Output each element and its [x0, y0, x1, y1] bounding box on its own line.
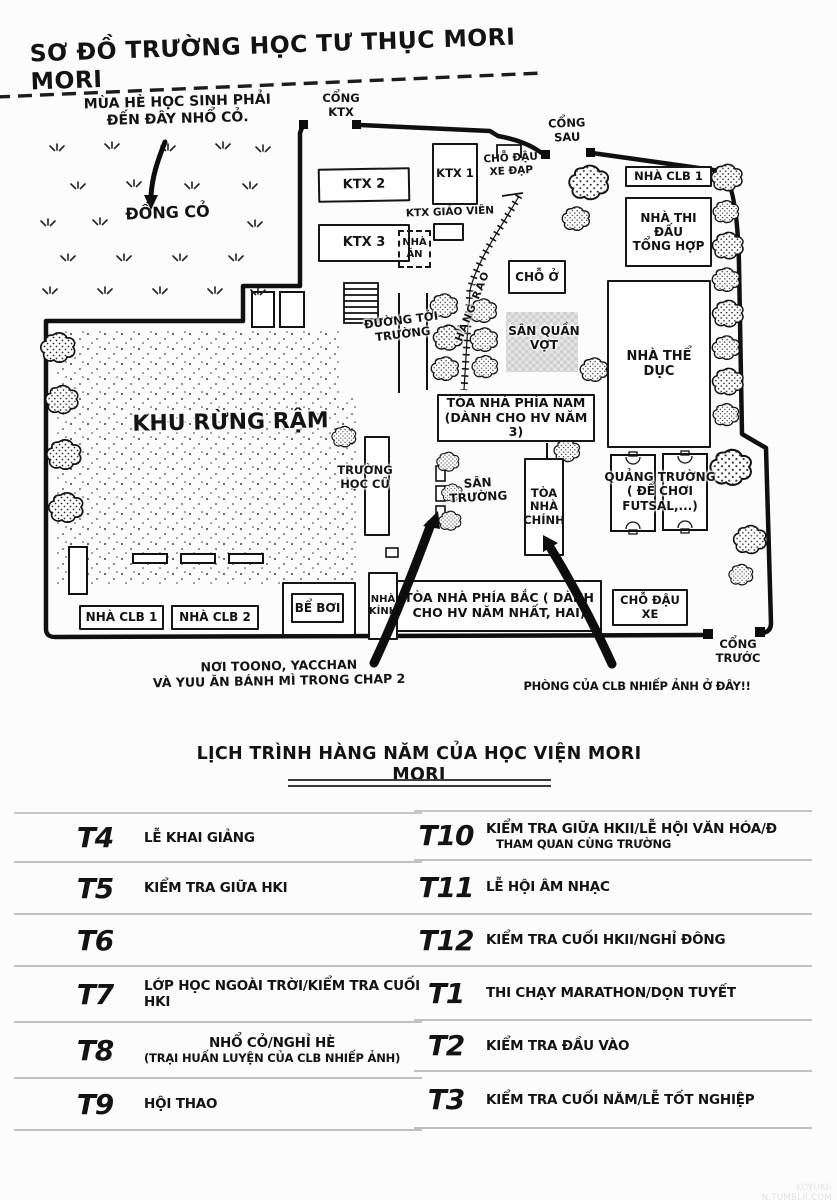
- building-ktx1: KTX 1: [432, 143, 478, 205]
- schedule-row: T3 KIỂM TRA CUỐI NĂM/LỄ TỐT NGHIỆP: [414, 1072, 812, 1129]
- building-main: TÒA NHÀ CHÍNH: [524, 458, 564, 556]
- grass-field-label: ĐỒNG CỎ: [115, 201, 221, 224]
- month-label: T1: [414, 977, 478, 1010]
- month-label: T2: [414, 1029, 478, 1062]
- gate-ktx-label: CỔNG KTX: [312, 92, 370, 120]
- event-label: KIỂM TRA GIỮA HKII/LỄ HỘI VĂN HÓA/Đ: [486, 821, 777, 837]
- event-label: KIỂM TRA CUỐI HKII/NGHỈ ĐÔNG: [486, 932, 725, 948]
- benches: [133, 554, 263, 563]
- building-ktx2: KTX 2: [318, 167, 411, 203]
- building-gym: NHÀ THỂ DỤC: [607, 280, 711, 448]
- schedule-row: T12 KIỂM TRA CUỐI HKII/NGHỈ ĐÔNG: [414, 915, 812, 967]
- old-school-label: TRƯỜNG HỌC CŨ: [334, 464, 396, 492]
- building-arena: NHÀ THI ĐẤU TỔNG HỢP: [625, 197, 712, 267]
- small-buildings: [252, 292, 304, 327]
- building-south: TÒA NHÀ PHÍA NAM (DÀNH CHO HV NĂM 3): [437, 394, 595, 442]
- schedule-row: T5 KIỂM TRA GIỮA HKI: [14, 863, 422, 915]
- gate-back-label: CỔNG SAU: [538, 116, 597, 146]
- schoolyard-label: SÂN TRƯỜNG: [445, 474, 510, 506]
- event-label: KIỂM TRA GIỮA HKI: [144, 880, 288, 896]
- month-label: T9: [60, 1088, 130, 1121]
- building-north: TÒA NHÀ PHÍA BẮC ( DÀNH CHO HV NĂM NHẤT,…: [396, 580, 602, 632]
- building-club1-top: NHÀ CLB 1: [625, 166, 712, 187]
- tennis-label: SÂN QUẦN VỢT: [504, 324, 584, 353]
- watermark: KOYUKI-N.TUMBLR.COM: [734, 1183, 832, 1200]
- building-club1: NHÀ CLB 1: [79, 605, 164, 630]
- forest-texture: [56, 330, 358, 586]
- month-label: T12: [414, 924, 478, 957]
- schedule-row: T6: [14, 915, 422, 967]
- event-label: LỚP HỌC NGOÀI TRỜI/KIỂM TRA CUỐI HKI: [144, 978, 422, 1010]
- road-lines: [399, 293, 427, 393]
- building-canteen: NHÀ ĂN: [398, 230, 431, 268]
- month-label: T5: [60, 872, 130, 905]
- schedule-row: T7 LỚP HỌC NGOÀI TRỜI/KIỂM TRA CUỐI HKI: [14, 967, 422, 1023]
- building-pool: BỂ BƠI: [291, 593, 344, 623]
- bike-parking-label: CHỖ ĐẬU XE ĐẠP: [480, 150, 541, 178]
- event-label: LỄ HỘI ÂM NHẠC: [486, 879, 610, 895]
- building-parking: CHỖ ĐẬU XE: [612, 589, 688, 626]
- forest-label: KHU RỪNG RẬM: [128, 408, 333, 438]
- month-label: T10: [414, 819, 478, 852]
- building-ktx3: KTX 3: [318, 224, 410, 262]
- schedule-row: T1 THI CHẠY MARATHON/DỌN TUYẾT: [414, 967, 812, 1021]
- event-label: HỘI THAO: [144, 1096, 217, 1112]
- schedule-row: T11 LỄ HỘI ÂM NHẠC: [414, 861, 812, 915]
- event-label: LỄ KHAI GIẢNG: [144, 830, 255, 846]
- month-label: T11: [414, 871, 478, 904]
- annotation-bread: NƠI TOONO, YACCHAN VÀ YUU ĂN BÁNH MÌ TRO…: [148, 656, 410, 691]
- event-label: KIỂM TRA ĐẦU VÀO: [486, 1038, 629, 1054]
- schedule-left-column: T4 LỄ KHAI GIẢNG T5 KIỂM TRA GIỮA HKI T6…: [14, 812, 422, 1131]
- event-label: KIỂM TRA CUỐI NĂM/LỄ TỐT NGHIỆP: [486, 1092, 755, 1108]
- building-club2: NHÀ CLB 2: [171, 605, 259, 630]
- gate-front-label: CỔNG TRƯỚC: [706, 638, 770, 666]
- month-label: T3: [414, 1083, 478, 1116]
- square-label: QUẢNG TRƯỜNG ( ĐỂ CHƠI FUTSAL,...): [592, 470, 728, 513]
- building-greenhouse: NHÀ KÍNH: [368, 572, 398, 640]
- schedule-row: T10 KIỂM TRA GIỮA HKII/LỄ HỘI VĂN HÓA/ĐT…: [414, 812, 812, 861]
- schedule-row: T8 NHỔ CỎ/NGHỈ HÈ(TRẠI HUẤN LUYỆN CỦA CL…: [14, 1023, 422, 1079]
- month-label: T8: [60, 1034, 130, 1067]
- event-label: THI CHẠY MARATHON/DỌN TUYẾT: [486, 985, 736, 1001]
- schedule-row: T4 LỄ KHAI GIẢNG: [14, 814, 422, 863]
- annotation-photo-club: PHÒNG CỦA CLB NHIẾP ẢNH Ở ĐÂY!!: [518, 680, 756, 694]
- north-building-annex: [386, 548, 398, 557]
- schedule-title-underline: [288, 779, 551, 787]
- manga-map-page: KTX 2 KTX 3 KTX 1 NHÀ ĂN CHỖ Ở NHÀ CLB 1…: [0, 0, 837, 1200]
- storage-shed: [69, 547, 87, 594]
- building-lodging: CHỖ Ở: [508, 260, 566, 294]
- month-label: T7: [60, 978, 130, 1011]
- schedule-row: T9 HỘI THAO: [14, 1079, 422, 1131]
- schedule-right-column: T10 KIỂM TRA GIỮA HKII/LỄ HỘI VĂN HÓA/ĐT…: [414, 810, 812, 1129]
- event-label: NHỔ CỎ/NGHỈ HÈ: [209, 1035, 335, 1051]
- grass-note: MÙA HÈ HỌC SINH PHẢI ĐẾN ĐÂY NHỔ CỎ.: [60, 91, 296, 131]
- month-label: T6: [60, 924, 130, 957]
- building-ktx-teacher: [433, 223, 464, 241]
- schedule-row: T2 KIỂM TRA ĐẦU VÀO: [414, 1021, 812, 1072]
- month-label: T4: [60, 821, 130, 854]
